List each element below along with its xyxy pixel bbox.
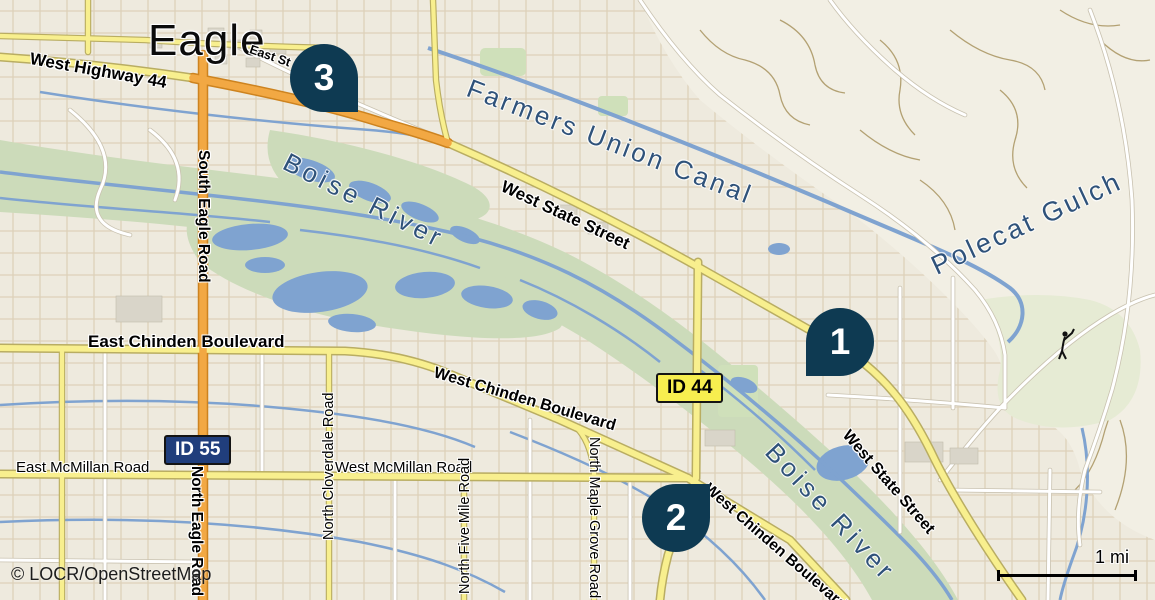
map-marker-2[interactable]: 2 xyxy=(642,484,710,552)
route-shield-id-55: ID 55 xyxy=(164,435,231,465)
road-label-north-maple-grove-road: North Maple Grove Road xyxy=(586,437,602,598)
road-label-east-mcmillan-road: East McMillan Road xyxy=(16,459,149,476)
scale-bar-label: 1 mi xyxy=(1095,547,1129,568)
road-label-north-five-mile-road: North Five Mile Road xyxy=(457,458,473,594)
map-canvas: Eagle West Highway 44 East St West State… xyxy=(0,0,1155,600)
map-base-layer xyxy=(0,0,1155,600)
map-attribution: © LOCR/OpenStreetMap xyxy=(11,564,211,585)
road-label-east-chinden-boulevard: East Chinden Boulevard xyxy=(88,332,284,352)
road-label-north-cloverdale-road: North Cloverdale Road xyxy=(321,393,337,541)
map-marker-1[interactable]: 1 xyxy=(806,308,874,376)
scale-bar-rule xyxy=(997,570,1137,581)
map-marker-3[interactable]: 3 xyxy=(290,44,358,112)
city-label-eagle: Eagle xyxy=(148,16,266,66)
route-shield-id-44: ID 44 xyxy=(656,373,723,403)
road-label-south-eagle-road: South Eagle Road xyxy=(194,150,212,283)
road-label-west-mcmillan-road: West McMillan Road xyxy=(335,459,472,476)
